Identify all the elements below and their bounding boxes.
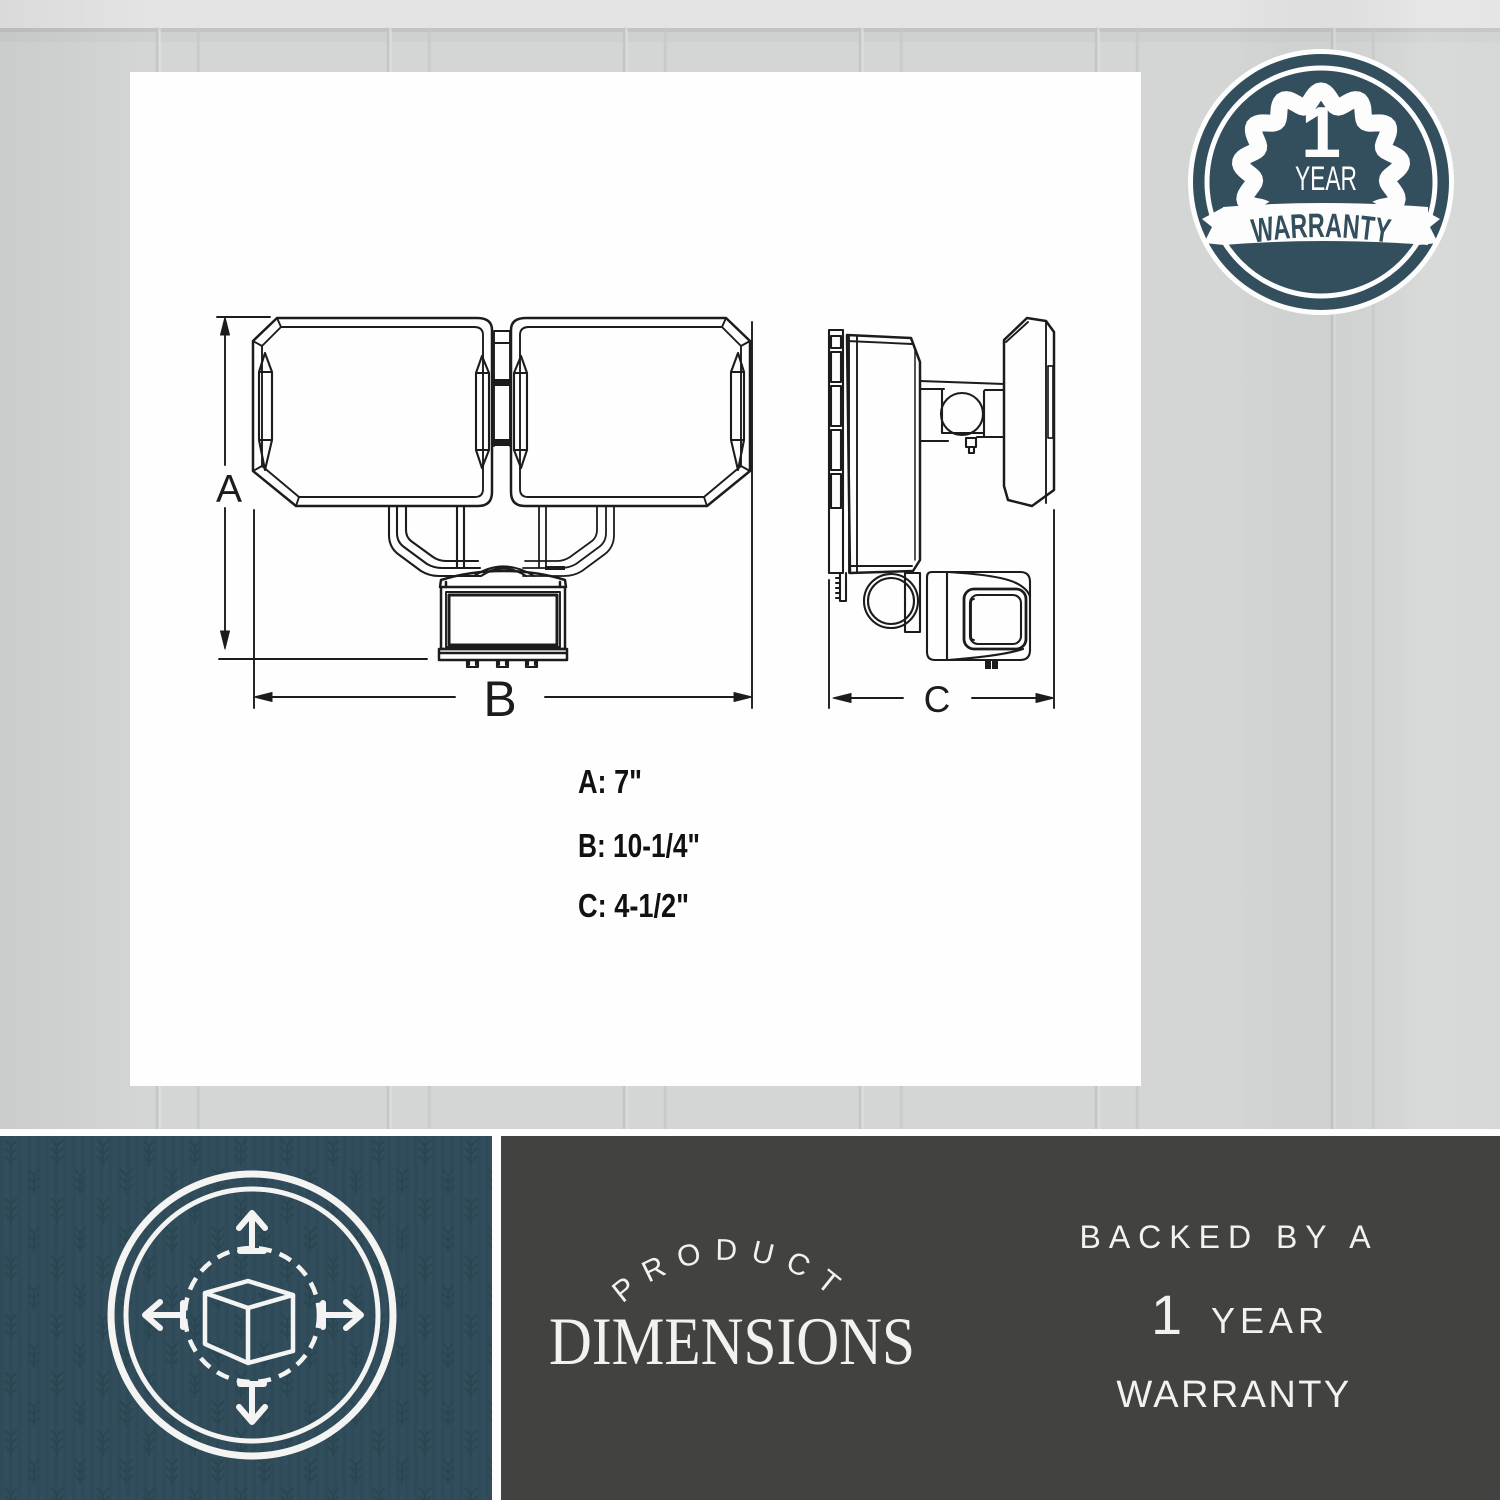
svg-text:C: C (924, 679, 951, 720)
svg-text:B: 10-1/4": B: 10-1/4" (578, 827, 700, 864)
svg-text:DIMENSIONS: DIMENSIONS (549, 1303, 915, 1379)
svg-text:C: 4-1/2": C: 4-1/2" (578, 887, 689, 924)
svg-text:YEAR: YEAR (1295, 160, 1357, 198)
svg-text:PRODUCT: PRODUCT (606, 1234, 856, 1309)
svg-text:YEAR: YEAR (1211, 1300, 1329, 1341)
svg-text:BACKED BY A: BACKED BY A (1079, 1219, 1378, 1255)
svg-text:A: 7": A: 7" (578, 763, 642, 800)
svg-text:B: B (483, 671, 516, 727)
svg-text:WARRANTY: WARRANTY (1116, 1374, 1351, 1416)
svg-text:A: A (216, 468, 242, 511)
svg-text:1: 1 (1151, 1283, 1182, 1346)
